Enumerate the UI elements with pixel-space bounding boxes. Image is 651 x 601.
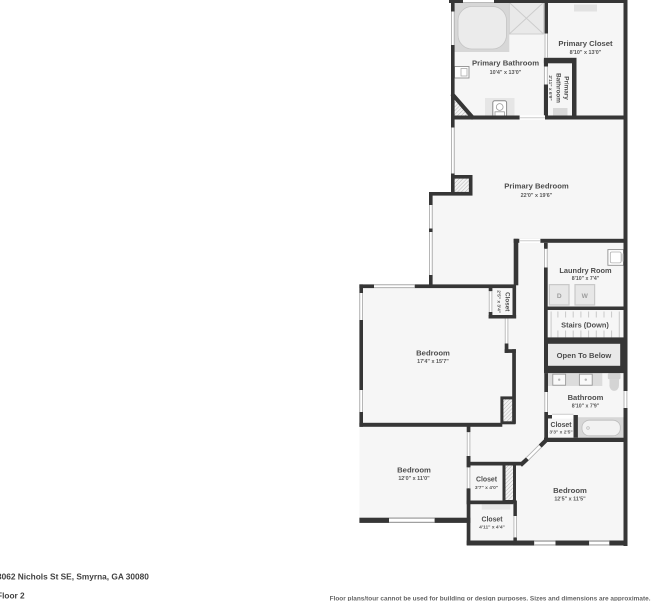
svg-text:3062 Nichols St SE, Smyrna, GA: 3062 Nichols St SE, Smyrna, GA 30080 <box>0 572 149 582</box>
svg-text:8'10" x 7'9": 8'10" x 7'9" <box>572 404 600 410</box>
svg-text:Floor 2: Floor 2 <box>0 591 25 601</box>
svg-text:Closet: Closet <box>550 422 572 429</box>
svg-text:Primary: Primary <box>563 76 570 100</box>
svg-text:2'11" x 6'9": 2'11" x 6'9" <box>547 75 553 100</box>
svg-text:Primary Closet: Primary Closet <box>558 39 613 48</box>
svg-text:Bedroom: Bedroom <box>553 486 587 495</box>
svg-text:Primary Bedroom: Primary Bedroom <box>504 182 569 191</box>
svg-text:W: W <box>582 293 589 300</box>
svg-text:2'5" x 3'4": 2'5" x 3'4" <box>495 290 501 313</box>
svg-text:8'10" x 7'4": 8'10" x 7'4" <box>572 276 600 282</box>
svg-text:Stairs (Down): Stairs (Down) <box>561 320 609 329</box>
svg-text:12'0" x 11'0": 12'0" x 11'0" <box>398 476 430 482</box>
svg-text:Bathroom: Bathroom <box>568 393 604 402</box>
svg-text:Floor plans/tour cannot be use: Floor plans/tour cannot be used for buil… <box>330 595 651 601</box>
svg-text:Laundry Room: Laundry Room <box>559 266 612 275</box>
svg-text:Bathroom: Bathroom <box>555 73 562 103</box>
svg-text:Open To Below: Open To Below <box>557 351 612 360</box>
svg-text:D: D <box>557 293 562 300</box>
svg-text:22'0" x 19'6": 22'0" x 19'6" <box>521 193 553 199</box>
svg-text:10'4" x 13'0": 10'4" x 13'0" <box>490 70 522 76</box>
svg-text:Closet: Closet <box>503 292 510 312</box>
svg-text:12'5" x 11'5": 12'5" x 11'5" <box>554 496 586 502</box>
svg-text:Primary Bathroom: Primary Bathroom <box>472 59 539 68</box>
svg-text:3'3" x 2'5": 3'3" x 2'5" <box>549 429 572 435</box>
svg-text:3'7" x 4'0": 3'7" x 4'0" <box>475 485 498 491</box>
svg-text:4'11" x 4'4": 4'11" x 4'4" <box>479 524 505 530</box>
svg-text:Bedroom: Bedroom <box>397 465 431 474</box>
svg-text:8'10" x 13'0": 8'10" x 13'0" <box>570 50 602 56</box>
svg-text:Bedroom: Bedroom <box>416 348 450 357</box>
svg-text:Closet: Closet <box>476 477 498 484</box>
svg-text:17'4" x 15'7": 17'4" x 15'7" <box>417 359 449 365</box>
svg-text:Closet: Closet <box>481 516 503 523</box>
